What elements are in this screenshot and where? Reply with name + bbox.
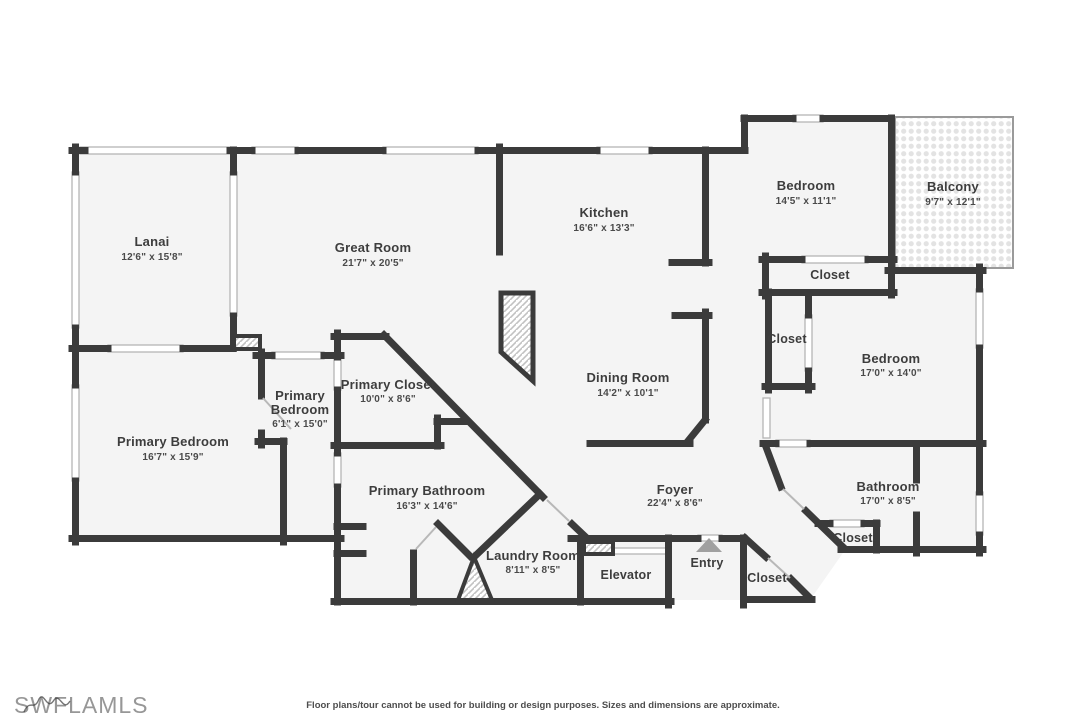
room-dims-primary-bathroom: 16'3" x 14'6" [396,501,457,512]
room-label-great-room: Great Room [335,240,411,255]
room-label-closet-bath: Closet [833,531,873,545]
floorplan-drawing: Lanai 12'6" x 15'8" Great Room 21'7" x 2… [0,0,1086,723]
room-dims-bathroom: 17'0" x 8'5" [860,496,916,507]
room-label-primary-hall-line1: Primary [275,388,325,403]
room-dims-balcony: 9'7" x 12'1" [925,197,981,208]
room-dims-bedroom-ne: 14'5" x 11'1" [776,196,837,207]
disclaimer-text: Floor plans/tour cannot be used for buil… [306,700,780,711]
room-label-kitchen: Kitchen [579,205,628,220]
column-hatch-greatroom [234,336,260,349]
room-dims-primary-bedroom: 16'7" x 15'9" [142,452,203,463]
room-dims-dining-room: 14'2" x 10'1" [597,388,658,399]
room-label-primary-bedroom: Primary Bedroom [117,434,229,449]
room-label-primary-closet: Primary Closet [341,377,436,392]
room-label-primary-bathroom: Primary Bathroom [369,483,486,498]
room-label-lanai: Lanai [135,234,170,249]
room-label-elevator: Elevator [601,568,652,582]
room-dims-primary-hall: 6'1" x 15'0" [272,419,328,430]
room-dims-bedroom-e: 17'0" x 14'0" [860,368,921,379]
room-label-bedroom-ne: Bedroom [777,178,835,193]
room-dims-foyer: 22'4" x 8'6" [647,498,703,509]
room-dims-lanai: 12'6" x 15'8" [121,252,182,263]
room-label-balcony: Balcony [927,179,980,194]
room-label-dining-room: Dining Room [586,370,669,385]
room-label-bedroom-e: Bedroom [862,351,920,366]
floorplan-page: Lanai 12'6" x 15'8" Great Room 21'7" x 2… [0,0,1086,723]
room-dims-laundry-room: 8'11" x 8'5" [505,565,560,576]
room-label-laundry-room: Laundry Room [486,548,580,563]
room-label-closet-foyer: Closet [747,571,787,585]
room-dims-kitchen: 16'6" x 13'3" [573,223,634,234]
room-label-closet-ne: Closet [810,268,850,282]
room-label-foyer: Foyer [657,482,693,497]
room-label-bathroom: Bathroom [857,479,920,494]
room-label-primary-hall-line2: Bedroom [271,402,329,417]
room-label-entry: Entry [691,556,724,570]
room-dims-great-room: 21'7" x 20'5" [342,258,403,269]
room-label-closet-e: Closet [767,332,807,346]
room-dims-primary-closet: 10'0" x 8'6" [360,394,416,405]
column-hatch-elevator [584,542,613,554]
